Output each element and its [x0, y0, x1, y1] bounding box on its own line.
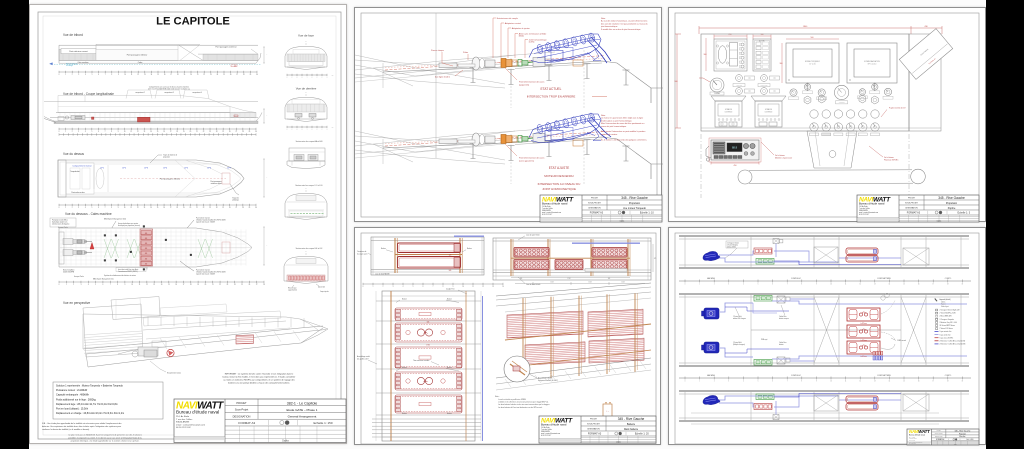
svg-text:1: 1 — [66, 284, 67, 286]
svg-text:amblokoje: amblokoje — [232, 199, 239, 201]
svg-text:batteries. Une expérience de s: batteries. Une expérience de stabilité d… — [42, 425, 121, 428]
svg-text:Mais l'intersection des axes d: Mais l'intersection des axes doit être p… — [601, 122, 644, 125]
svg-text:30: 30 — [256, 74, 258, 76]
svg-text:10: 10 — [124, 74, 126, 76]
svg-text:2 Bancs BMS 4kW: 2 Bancs BMS 4kW — [940, 316, 953, 318]
svg-text:5: 5 — [312, 129, 313, 131]
svg-text:+2,5: +2,5 — [331, 127, 334, 129]
svg-text:11: 11 — [139, 284, 141, 286]
svg-text:Il semble être en arrière du j: Il semble être en arrière du joint homoc… — [601, 28, 641, 31]
svg-text:4: 4 — [85, 207, 86, 209]
svg-text:Capacité embarquée : 480kWh: Capacité embarquée : 480kWh — [56, 394, 90, 397]
svg-text:Montée à l'apercevoir: Montée à l'apercevoir — [775, 157, 793, 160]
svg-text:DESIGNATION: DESIGNATION — [588, 207, 601, 210]
svg-text:21: 21 — [212, 284, 214, 286]
svg-text:FORMAT A3: FORMAT A3 — [588, 433, 602, 436]
svg-text:1782: 1782 — [567, 278, 570, 280]
svg-text:Vue de face: Vue de face — [298, 34, 314, 38]
svg-text:6: 6 — [98, 207, 99, 209]
svg-text:19: 19 — [183, 207, 185, 209]
svg-text:480: 480 — [145, 243, 147, 245]
svg-text:1: 1 — [373, 286, 374, 288]
svg-text:CONTROLE: CONTROLE — [765, 112, 773, 114]
svg-text:450: 450 — [734, 165, 737, 167]
svg-text:Ce plan n'est pas un GA défini: Ce plan n'est pas un GA définitif. Il pe… — [68, 434, 142, 437]
svg-text:22: 22 — [203, 74, 205, 76]
svg-text:06 16 23 13 02: 06 16 23 13 02 — [542, 214, 552, 216]
svg-text:Section entre les coupes C-C e: Section entre les coupes C-C et D-D — [295, 184, 323, 187]
svg-text:14: 14 — [161, 284, 163, 286]
svg-text:7 rue des Caliles: 7 rue des Caliles — [176, 418, 193, 421]
svg-text:0: 0 — [59, 284, 60, 286]
svg-text:19: 19 — [197, 284, 199, 286]
svg-text:480: 480 — [145, 233, 147, 235]
svg-text:NAVIWATT: NAVIWATT — [909, 429, 930, 434]
svg-text:4: 4 — [403, 286, 404, 288]
svg-text:Coque injectée: Coque injectée — [320, 290, 329, 293]
svg-text:xxxx: xxxx — [748, 78, 751, 80]
svg-text:compartiment 4: compartiment 4 — [192, 91, 202, 94]
svg-text:16: 16 — [163, 207, 165, 209]
svg-text:10: 10 — [830, 381, 832, 383]
svg-text:14: 14 — [150, 207, 152, 209]
svg-text:INTERSECTION TROP EN ARRIERE: INTERSECTION TROP EN ARRIERE — [527, 95, 576, 99]
svg-text:Vue en perspective: Vue en perspective — [63, 301, 90, 305]
svg-text:18: 18 — [947, 381, 949, 383]
svg-text:(CVS): (CVS) — [529, 41, 535, 43]
svg-text:1503: 1503 — [551, 282, 554, 284]
svg-text:22: 22 — [219, 284, 221, 286]
svg-text:15: 15 — [168, 284, 170, 286]
svg-text:18: 18 — [176, 207, 178, 209]
svg-text:CL: CL — [305, 188, 307, 190]
svg-text:Boulon: Boulon — [467, 248, 472, 250]
svg-text:0: 0 — [59, 74, 60, 76]
svg-text:CONTROLE: CONTROLE — [725, 112, 733, 114]
svg-text:INTERSECTION AU NIVEAU DU: INTERSECTION AU NIVEAU DU — [538, 182, 581, 186]
svg-text:6: 6 — [103, 284, 104, 286]
svg-text:2 Victron MultiPlus-II 24V: 2 Victron MultiPlus-II 24V — [940, 312, 956, 315]
svg-text:2: 2 — [714, 381, 715, 383]
svg-text:SOUS-PROJET: SOUS-PROJET — [588, 203, 602, 205]
svg-text:2 Victron 12V lithium: 2 Victron 12V lithium — [940, 327, 954, 330]
svg-text:(axes apparents): (axes apparents) — [519, 159, 534, 162]
svg-text:DESIGNATION: DESIGNATION — [587, 428, 600, 431]
svg-text:22: 22 — [203, 207, 205, 209]
svg-text:14: 14 — [150, 131, 152, 133]
svg-text:24: 24 — [217, 74, 219, 76]
svg-text:DESIGNATION: DESIGNATION — [233, 414, 251, 418]
svg-text:4: 4 — [743, 381, 744, 383]
svg-text:900: 900 — [674, 81, 678, 83]
svg-text:7: 7 — [110, 284, 111, 286]
svg-text:2 Chargeurs Victron Skylla 24V: 2 Chargeurs Victron Skylla 24V — [940, 309, 960, 312]
svg-text:25: 25 — [222, 207, 224, 209]
svg-text:Boulon: Boulon — [402, 413, 407, 415]
svg-text:Echelle 1: 150: Echelle 1: 150 — [314, 421, 333, 425]
svg-text:3: 3 — [78, 131, 79, 133]
svg-text:Ici, le moteur a été descendu: Ici, le moteur a été descendu de quelque… — [601, 138, 647, 141]
svg-text:des axes de rotations n'est pa: des axes de rotations n'est pas position… — [601, 22, 648, 25]
svg-text:160: 160 — [761, 34, 764, 36]
svg-text:PROJET: PROJET — [236, 401, 247, 405]
svg-text:8: 8 — [801, 284, 802, 286]
svg-text:Tube extincteur incendie: Tube extincteur incendie — [413, 359, 429, 362]
svg-text:d'arbre grâce au joint homocin: d'arbre grâce au joint homocinétique. — [601, 119, 633, 122]
svg-text:PROJET: PROJET — [937, 430, 942, 432]
svg-text:Lisse de fond 600x90: Lisse de fond 600x90 — [526, 284, 540, 286]
svg-text:Câbles: Câbles — [941, 301, 946, 303]
svg-text:18: 18 — [176, 131, 178, 133]
svg-text:17: 17 — [170, 74, 172, 76]
svg-text:(N10): (N10) — [519, 35, 524, 37]
svg-text:7: 7 — [105, 207, 106, 209]
svg-text:480: 480 — [145, 238, 147, 240]
svg-text:17: 17 — [932, 284, 934, 286]
svg-text:9: 9 — [125, 284, 126, 286]
svg-text:Point d'intersection des axes: Point d'intersection des axes — [519, 157, 544, 160]
svg-text:1503: 1503 — [589, 282, 592, 284]
svg-text:13: 13 — [153, 284, 155, 286]
svg-text:bateau restant à être étudiés,: bateau restant à être étudiés, il n'est … — [223, 376, 296, 379]
svg-text:1800: 1800 — [803, 26, 808, 28]
svg-text:2 Extincteur / Coffret AV ou C: 2 Extincteur / Coffret AV ou Chambre AV — [940, 340, 966, 343]
svg-text:Trajets de batterie de: Trajets de batterie de — [163, 154, 177, 157]
svg-text:26: 26 — [230, 74, 232, 76]
svg-text:possibles et proposées au clie: possibles et proposées au client. Il ne … — [68, 437, 142, 440]
svg-text:0: 0 — [59, 207, 60, 209]
svg-text:3: 3 — [302, 77, 303, 79]
svg-text:21: 21 — [196, 131, 198, 133]
svg-text:0: 0 — [287, 129, 288, 131]
svg-text:ETAT ACTUEL: ETAT ACTUEL — [541, 87, 562, 91]
svg-text:8: 8 — [443, 286, 444, 288]
svg-text:0: 0 — [685, 381, 686, 383]
svg-text:Boulon: Boulon — [381, 248, 386, 250]
svg-text:4: 4 — [743, 284, 744, 286]
svg-text:4,6: 4,6 — [234, 65, 236, 67]
svg-text:1: 1 — [292, 77, 293, 79]
svg-text:Pompe(s) incendie NB ou: Pompe(s) incendie NB ou — [52, 220, 68, 222]
svg-text:9: 9 — [118, 207, 119, 209]
svg-text:Echelle 1: 20: Echelle 1: 20 — [635, 433, 649, 436]
svg-text:FORMAT A3: FORMAT A3 — [907, 212, 921, 215]
svg-text:L=585mm: L=585mm — [860, 356, 867, 358]
svg-text:290: 290 — [729, 34, 732, 36]
svg-text:9: 9 — [453, 286, 454, 288]
svg-text:345 - Rive Gauche: 345 - Rive Gauche — [621, 196, 648, 200]
svg-text:23: 23 — [209, 207, 211, 209]
svg-text:18: 18 — [177, 74, 179, 76]
svg-text:propulsion électrique, une étu: propulsion électrique, une étude approfo… — [71, 440, 140, 443]
svg-text:2: 2 — [72, 131, 73, 133]
svg-text:6: 6 — [423, 286, 424, 288]
svg-text:JOINT HOMOCINETIQUE: JOINT HOMOCINETIQUE — [542, 187, 576, 191]
svg-text:Compartiment moteur: Compartiment moteur — [72, 165, 92, 168]
svg-text:Système de refroidissement des: Système de refroidissement des batteries… — [104, 274, 136, 277]
svg-text:15: 15 — [157, 207, 159, 209]
svg-text:4: 4 — [88, 284, 89, 286]
svg-text:+2,5: +2,5 — [331, 75, 334, 77]
svg-text:Pont passagers intérieur: Pont passagers intérieur — [127, 54, 148, 57]
svg-text:Pont extérieur couvert: Pont extérieur couvert — [69, 50, 88, 53]
svg-text:7: 7 — [322, 77, 323, 79]
svg-text:ECRAN DE: ECRAN DE — [725, 108, 732, 111]
svg-text:Parc batterie traction: Parc batterie traction — [196, 217, 210, 220]
svg-text:2 Extincteur / Coffret AV ou C: 2 Extincteur / Coffret AV ou Chambre AR — [940, 343, 966, 346]
svg-text:Propulsion: Propulsion — [629, 202, 641, 205]
svg-text:Sous-Projet: Sous-Projet — [235, 408, 249, 412]
svg-text:12: 12 — [137, 74, 139, 76]
svg-text:13: 13 — [144, 131, 146, 133]
svg-text:6: 6 — [317, 129, 318, 131]
svg-text:1782: 1782 — [426, 345, 430, 347]
svg-text:14: 14 — [889, 381, 891, 383]
svg-text:batteries via une pompe dédiée: batteries via une pompe dédiée à chacun … — [228, 382, 290, 385]
svg-text:Boulon: Boulon — [402, 299, 407, 301]
svg-text:8: 8 — [327, 129, 328, 131]
svg-text:Tuyaux: Tuyaux — [941, 304, 946, 306]
svg-text:13: 13 — [144, 207, 146, 209]
svg-text:Vue de derrière: Vue de derrière — [296, 87, 317, 91]
svg-text:8: 8 — [111, 207, 112, 209]
svg-text:2: 2 — [73, 284, 74, 286]
svg-text:6: 6 — [772, 284, 773, 286]
svg-text:1: 1 — [699, 284, 700, 286]
svg-text:585: 585 — [608, 278, 611, 280]
svg-text:2 Chargeurs Victron: 2 Chargeurs Victron — [727, 242, 739, 245]
svg-text:Cale machine: Cale machine — [78, 62, 89, 64]
svg-text:Coffret Sécu: Coffret Sécu — [779, 315, 787, 318]
svg-text:15: 15 — [157, 74, 159, 76]
svg-text:2 Modules Torqeedo DeepBlue B3: 2 Modules Torqeedo DeepBlue B3 LiFePO4 3… — [196, 219, 226, 221]
svg-text:Déplacement lège : 28,2t: Déplacement lège : 28,2t LGG=11,7m YG=0,… — [56, 403, 118, 406]
svg-text:PDM unjet: PDM unjet — [761, 338, 768, 341]
svg-text:7 rue des Caliles: 7 rue des Caliles — [859, 208, 870, 210]
svg-text:5: 5 — [413, 286, 414, 288]
svg-text:16: 16 — [918, 381, 920, 383]
svg-text:Echelle 1: 3: Echelle 1: 3 — [958, 212, 971, 215]
svg-text:Fluide frigori: Fluide frigori — [941, 306, 949, 308]
svg-text:480: 480 — [145, 263, 147, 265]
svg-text:345 - Rive Gauche: 345 - Rive Gauche — [955, 430, 971, 432]
svg-text:Pupitre: Pupitre — [948, 207, 956, 210]
svg-text:0: 0 — [685, 284, 686, 286]
svg-text:Bureau d'étude naval: Bureau d'étude naval — [859, 202, 885, 206]
svg-text:26: 26 — [229, 207, 231, 209]
svg-text:Rack batterie: Rack batterie — [624, 428, 639, 431]
svg-text:13: 13 — [492, 286, 494, 288]
svg-text:CL: CL — [305, 92, 307, 94]
svg-text:88.8: 88.8 — [732, 146, 738, 150]
svg-text:4: 4 — [85, 74, 86, 76]
svg-text:Boulon: Boulon — [402, 367, 407, 369]
svg-text:12: 12 — [482, 286, 484, 288]
svg-text:SOUS-PROJET: SOUS-PROJET — [935, 433, 943, 435]
svg-text:23: 23 — [210, 74, 212, 76]
svg-text:5: 5 — [91, 131, 92, 133]
svg-text:17: 17 — [170, 207, 172, 209]
svg-text:2 Chargeurs Torqeedo: 2 Chargeurs Torqeedo — [940, 319, 954, 321]
svg-text:20: 20 — [190, 74, 192, 76]
svg-text:1: 1 — [65, 131, 66, 133]
svg-text:Echelle 1: 10: Echelle 1: 10 — [640, 212, 654, 215]
svg-text:Lisse de pont 75x50: Lisse de pont 75x50 — [526, 233, 540, 236]
svg-text:2: 2 — [383, 286, 384, 288]
svg-text:2: 2 — [72, 207, 73, 209]
svg-text:+ -: + - — [606, 411, 609, 413]
svg-text:10: 10 — [462, 286, 464, 288]
svg-text:17: 17 — [932, 381, 934, 383]
svg-text:585: 585 — [520, 278, 523, 280]
svg-text:Port en lourd (départ) : 15,5t: Port en lourd (départ) : 15,5t/h — [56, 408, 89, 411]
svg-text:2 Victron Multi: 2 Victron Multi — [733, 315, 742, 318]
svg-text:500: 500 — [811, 37, 814, 39]
svg-text:L: L — [267, 54, 268, 56]
svg-text:13: 13 — [874, 284, 876, 286]
svg-text:6: 6 — [772, 381, 773, 383]
svg-text:Encadrement moteur: Encadrement moteur — [167, 372, 182, 375]
svg-text:382-1 - Le Capitole: 382-1 - Le Capitole — [287, 401, 318, 405]
svg-text:14: 14 — [889, 284, 891, 286]
svg-text:Bureau d'étude naval: Bureau d'étude naval — [542, 202, 568, 206]
svg-text:3: 3 — [728, 284, 729, 286]
svg-text:Ouverture de: Ouverture de — [357, 250, 366, 253]
svg-text:11: 11 — [131, 207, 133, 209]
svg-text:Entretoisseur de couple: Entretoisseur de couple — [497, 17, 519, 20]
svg-text:25: 25 — [222, 131, 224, 133]
svg-text:24: 24 — [234, 284, 236, 286]
svg-text:30: 30 — [255, 131, 257, 133]
svg-text:FORMAT A3: FORMAT A3 — [238, 421, 255, 425]
svg-text:COMP BATTERIE: COMP BATTERIE — [877, 374, 892, 377]
svg-text:ETAT AJUSTE: ETAT AJUSTE — [549, 166, 570, 170]
svg-text:Boulon: Boulon — [447, 413, 452, 415]
svg-text:COMPAS: COMPAS — [714, 92, 720, 95]
svg-text:Bureau d'étude naval: Bureau d'étude naval — [176, 410, 219, 415]
svg-text:430: 430 — [924, 26, 928, 28]
svg-text:Propulsion: Propulsion — [946, 202, 958, 205]
svg-text:16: 16 — [163, 131, 165, 133]
svg-text:3: 3 — [78, 207, 79, 209]
svg-text:22: 22 — [203, 131, 205, 133]
svg-text:Groupe hydraulique avec moteur: Groupe hydraulique avec moteur — [118, 222, 139, 225]
svg-text:27: 27 — [256, 284, 258, 286]
svg-text:Etude GATE – Phase 1: Etude GATE – Phase 1 — [287, 408, 318, 412]
svg-text:11: 11 — [845, 381, 847, 383]
svg-text:batterie 500: batterie 500 — [318, 286, 325, 289]
svg-text:Axe moteur Torqeedo: Axe moteur Torqeedo — [623, 207, 646, 210]
svg-text:COMP BATTERIE: COMP BATTERIE — [877, 277, 892, 280]
svg-text:Parc batterie traction: Parc batterie traction — [196, 269, 210, 272]
svg-text:1503: 1503 — [622, 282, 625, 284]
svg-text:Pont passagers intérieur: Pont passagers intérieur — [160, 178, 181, 181]
svg-text:PROJET: PROJET — [908, 198, 916, 200]
svg-text:1: 1 — [292, 129, 293, 131]
svg-text:5: 5 — [91, 207, 92, 209]
svg-text:300: 300 — [704, 54, 707, 56]
svg-text:email : contact@naviwatt.com: email : contact@naviwatt.com — [176, 423, 205, 426]
svg-text:29: 29 — [250, 74, 252, 76]
svg-text:12: 12 — [137, 207, 139, 209]
svg-text:Coffret Sécu: Coffret Sécu — [779, 341, 787, 344]
svg-text:niveau du joint homocinétique.: niveau du joint homocinétique. — [601, 125, 627, 128]
svg-text:Tuyau evacu NOVEC: Tuyau evacu NOVEC — [940, 337, 954, 339]
svg-text:7: 7 — [105, 74, 106, 76]
svg-text:16: 16 — [918, 284, 920, 286]
svg-text:FUEL/JAUGE: FUEL/JAUGE — [761, 84, 768, 87]
svg-text:L: L — [267, 115, 268, 117]
svg-text:COMP ELEC: COMP ELEC — [791, 375, 802, 377]
svg-text:8: 8 — [117, 284, 118, 286]
svg-text:06 16 23 13 02: 06 16 23 13 02 — [541, 435, 551, 437]
svg-text:7: 7 — [787, 284, 788, 286]
svg-text:Pupitre incliné de 15°: Pupitre incliné de 15° — [889, 107, 906, 110]
svg-text:Cales: Cales — [138, 62, 143, 64]
svg-text:6: 6 — [98, 74, 99, 76]
svg-text:Batterie: Batterie — [627, 423, 636, 426]
svg-text:06 16 23 13 02: 06 16 23 13 02 — [859, 214, 869, 216]
svg-text:3: 3 — [302, 129, 303, 131]
svg-text:0: 0 — [287, 77, 288, 79]
svg-text:12: 12 — [146, 284, 148, 286]
svg-text:Réservoir pour: Réservoir pour — [288, 288, 297, 290]
svg-text:9: 9 — [118, 74, 119, 76]
svg-text:confirmer le dossier de stabil: confirmer le dossier de stabilité (au le… — [42, 428, 90, 431]
svg-text:15: 15 — [157, 131, 159, 133]
svg-text:PROJET: PROJET — [590, 419, 598, 421]
svg-text:L: L — [267, 245, 268, 247]
svg-text:9: 9 — [816, 381, 817, 383]
svg-text:23: 23 — [209, 131, 211, 133]
svg-text:8: 8 — [327, 77, 328, 79]
svg-text:4: 4 — [85, 131, 86, 133]
svg-text:IMPORTANT : Le système de lutt: IMPORTANT : Le système de lutte contre l… — [225, 373, 294, 376]
svg-text:480: 480 — [145, 258, 147, 260]
svg-text:0: 0 — [59, 131, 60, 133]
svg-text:5: 5 — [95, 284, 96, 286]
svg-text:COMP 5: COMP 5 — [945, 278, 952, 280]
svg-text:Déplacement en charge : 43,8t: Déplacement en charge : 43,8t LGG=13,4m … — [56, 412, 124, 415]
svg-text:13: 13 — [874, 381, 876, 383]
svg-text:28: 28 — [242, 131, 244, 133]
svg-text:2: 2 — [297, 129, 298, 131]
svg-text:SOUS-PROJET: SOUS-PROJET — [905, 203, 919, 205]
svg-text:24: 24 — [216, 131, 218, 133]
svg-text:14: 14 — [151, 74, 153, 76]
svg-text:Vue de tribord: Vue de tribord — [63, 33, 83, 37]
svg-text:ECRAN NAVIGATION: ECRAN NAVIGATION — [864, 60, 880, 63]
svg-text:Ech 1:100: Ech 1:100 — [967, 439, 974, 441]
svg-text:Le rack est réalisé en profilé: Le rack est réalisé en profilé acier UPN… — [498, 398, 527, 401]
svg-text:Vue du dessus: Vue du dessus — [63, 152, 84, 156]
svg-text:(apparents): (apparents) — [519, 83, 530, 86]
svg-text:Tuyau arrivée d'air: Tuyau arrivée d'air — [940, 331, 952, 333]
svg-text:Plan de flottaison: Plan de flottaison — [66, 62, 78, 65]
svg-text:3: 3 — [78, 74, 79, 76]
svg-text:24: 24 — [216, 207, 218, 209]
svg-text:11: 11 — [131, 131, 133, 133]
svg-text:26 Victron MPPT lithium: 26 Victron MPPT lithium — [940, 324, 956, 327]
svg-text:Assemblage soudé: Assemblage soudé — [357, 355, 370, 358]
svg-text:Section entre les coupes A-A e: Section entre les coupes A-A et B-B — [296, 140, 324, 143]
svg-text:FORMAT A3: FORMAT A3 — [590, 212, 604, 215]
svg-text:11: 11 — [845, 284, 847, 286]
svg-text:au moins un extincteur NOVEC p: au moins un extincteur NOVEC par compart… — [223, 379, 294, 382]
svg-text:COMP 5: COMP 5 — [945, 375, 952, 377]
svg-text:8: 8 — [801, 381, 802, 383]
svg-text:verticale du moteur.: verticale du moteur. — [601, 133, 618, 136]
